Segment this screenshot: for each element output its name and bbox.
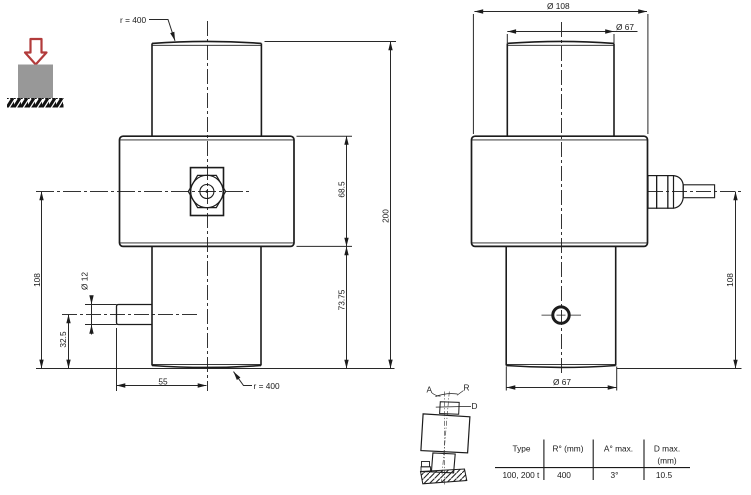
svg-text:68.5: 68.5 [337,181,347,198]
svg-text:400: 400 [557,470,571,480]
svg-text:3°: 3° [611,470,619,480]
svg-text:R: R [464,383,470,393]
svg-text:108: 108 [32,273,42,287]
svg-text:r = 400: r = 400 [254,381,280,391]
svg-text:Ø 67: Ø 67 [553,377,571,387]
svg-text:A: A [427,385,433,395]
svg-text:R° (mm): R° (mm) [553,444,584,454]
svg-text:10.5: 10.5 [656,470,673,480]
svg-text:100, 200 t: 100, 200 t [502,470,540,480]
svg-text:A° max.: A° max. [604,444,633,454]
svg-text:55: 55 [158,376,168,386]
svg-text:(mm): (mm) [657,456,677,466]
svg-text:r = 400: r = 400 [120,15,146,25]
svg-text:32.5: 32.5 [58,331,68,348]
svg-text:200: 200 [380,209,390,223]
svg-text:108: 108 [725,273,735,287]
svg-text:Ø 108: Ø 108 [547,1,570,11]
svg-text:Type: Type [513,444,531,454]
svg-text:D max.: D max. [654,444,680,454]
svg-text:73.75: 73.75 [337,289,347,310]
svg-text:Ø 12: Ø 12 [80,272,90,290]
svg-text:D: D [472,401,478,411]
svg-text:Ø 67: Ø 67 [616,22,634,32]
